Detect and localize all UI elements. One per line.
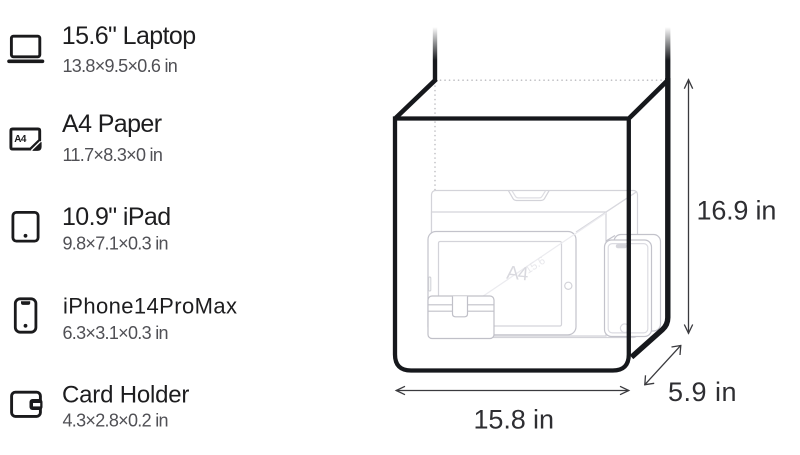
svg-text:4.3×2.8×0.2 in: 4.3×2.8×0.2 in xyxy=(63,411,168,431)
svg-text:11.7×8.3×0 in: 11.7×8.3×0 in xyxy=(63,145,163,165)
svg-text:9.8×7.1×0.3 in: 9.8×7.1×0.3 in xyxy=(63,234,168,254)
svg-text:A4: A4 xyxy=(14,134,27,145)
svg-text:15.6" Laptop: 15.6" Laptop xyxy=(62,22,196,50)
svg-text:10.9" iPad: 10.9" iPad xyxy=(62,203,171,231)
svg-text:16.9 in: 16.9 in xyxy=(697,196,777,226)
svg-text:A4 Paper: A4 Paper xyxy=(62,110,162,138)
svg-text:6.3×3.1×0.3 in: 6.3×3.1×0.3 in xyxy=(63,323,168,343)
svg-text:iPhone14ProMax: iPhone14ProMax xyxy=(63,293,237,318)
svg-text:A4: A4 xyxy=(506,263,530,286)
svg-text:Card Holder: Card Holder xyxy=(62,381,189,408)
svg-text:13.8×9.5×0.6 in: 13.8×9.5×0.6 in xyxy=(63,56,178,76)
svg-text:15.8 in: 15.8 in xyxy=(474,404,554,434)
svg-text:5.9 in: 5.9 in xyxy=(668,377,737,407)
